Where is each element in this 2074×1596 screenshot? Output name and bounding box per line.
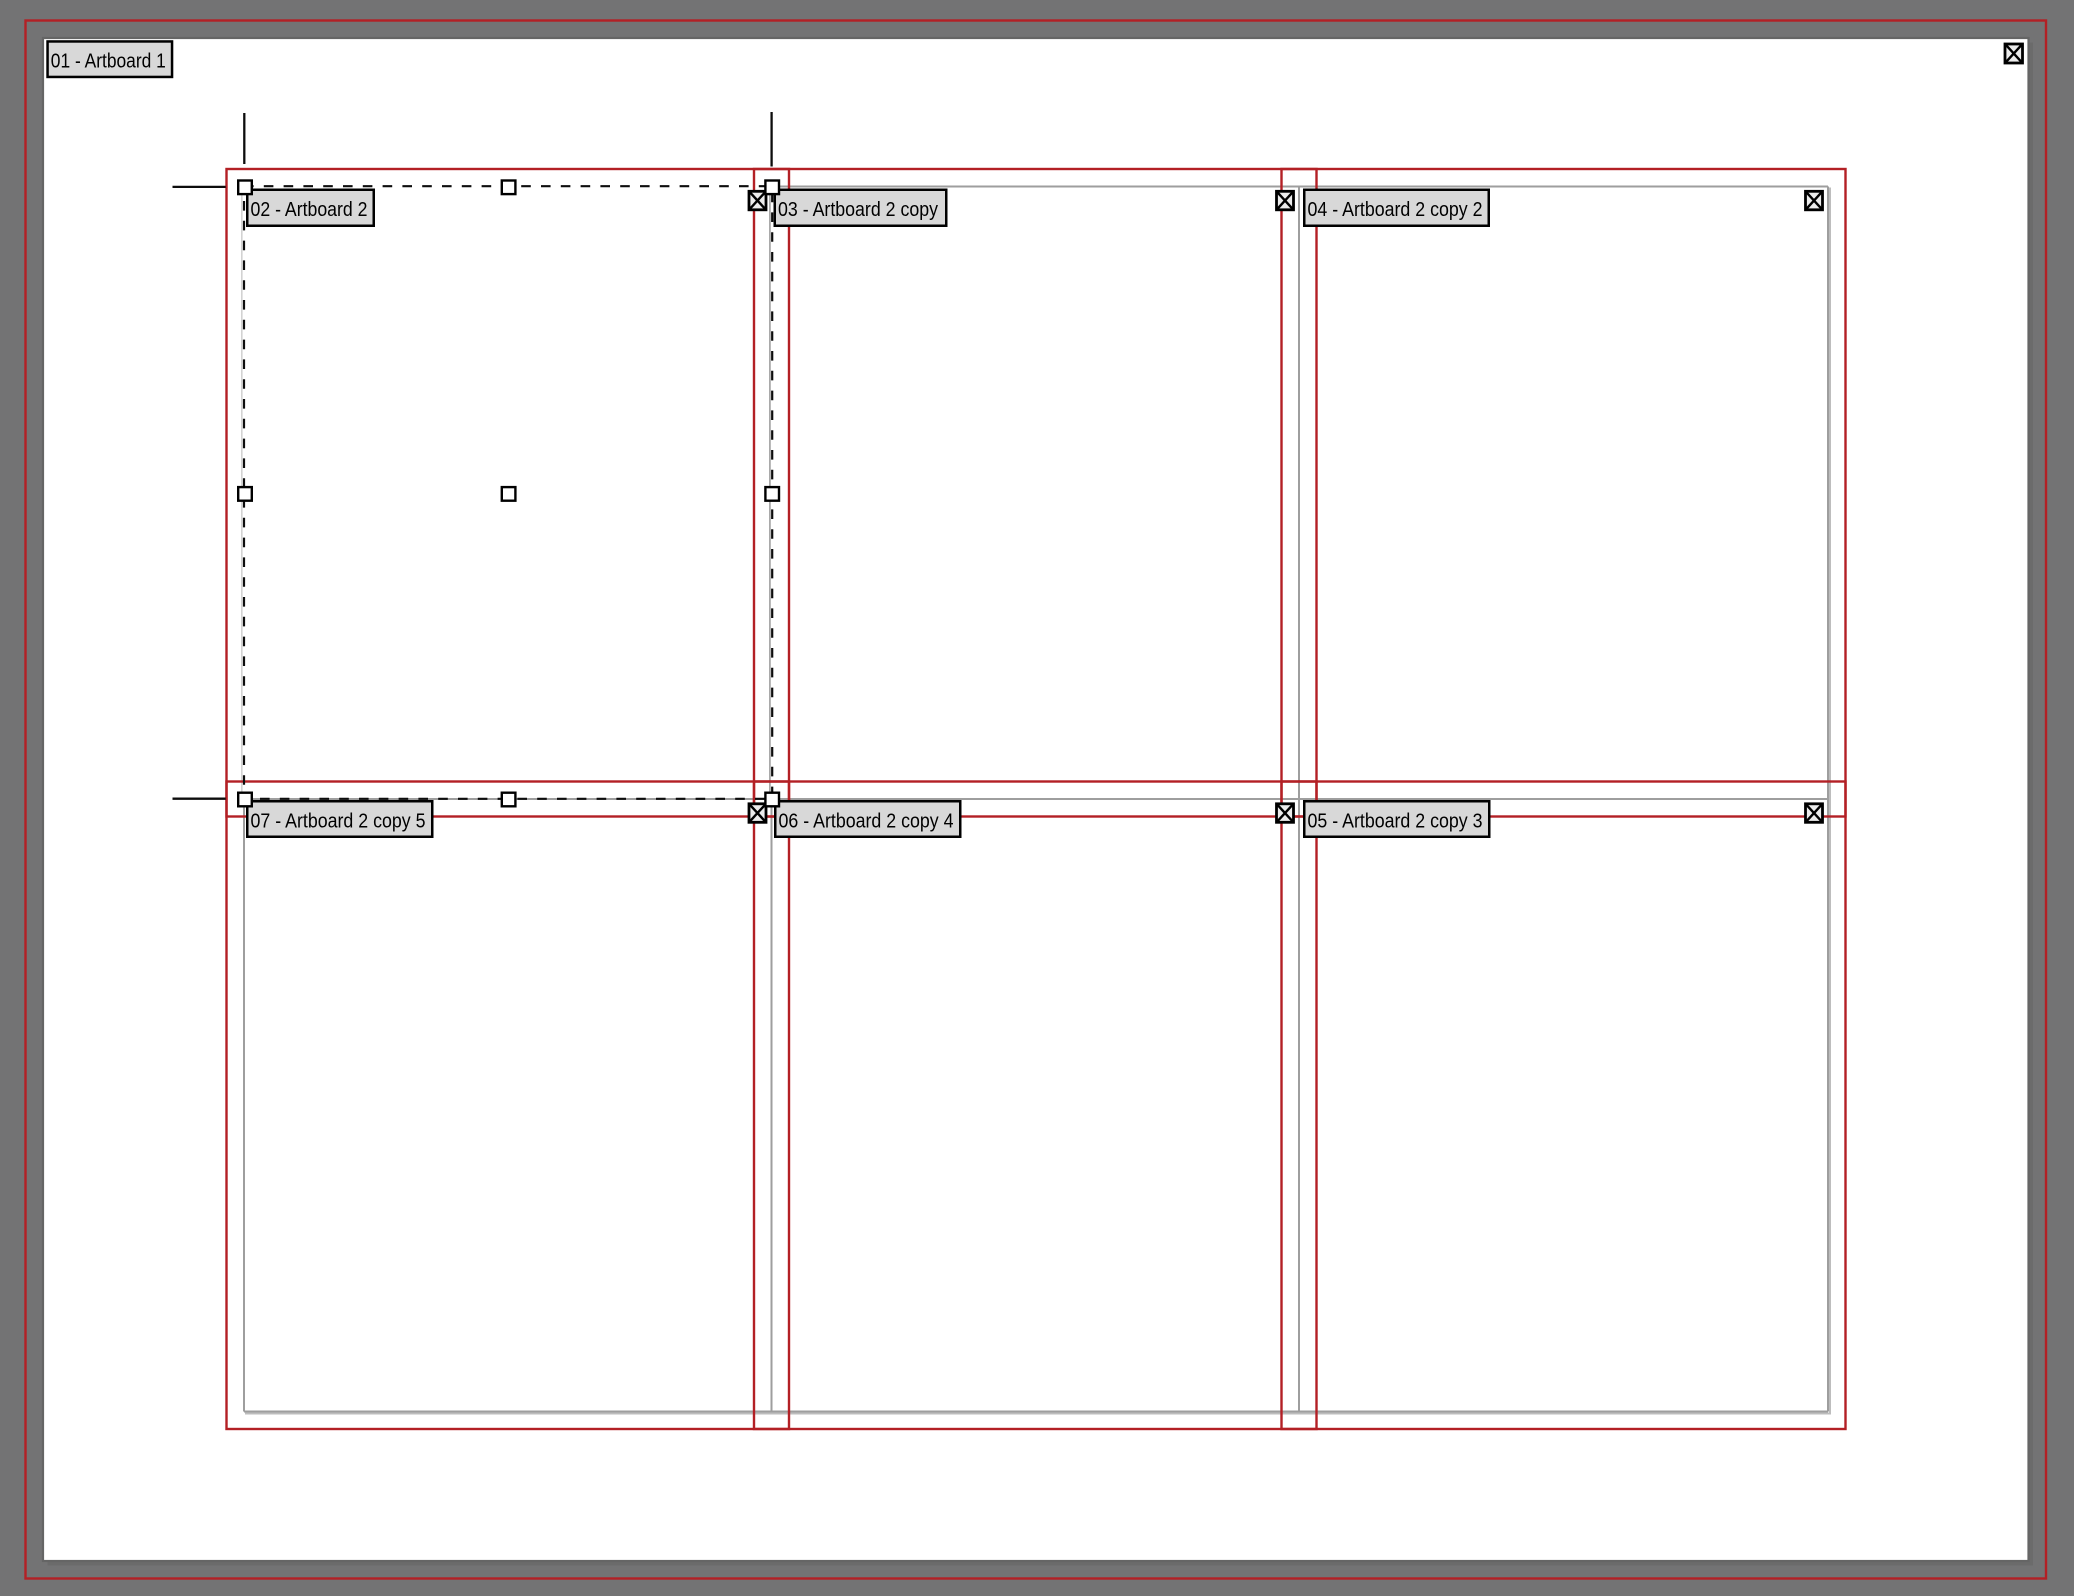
svg-text:07 - Artboard 2 copy 5: 07 - Artboard 2 copy 5 [251, 810, 426, 832]
svg-text:01 - Artboard 1: 01 - Artboard 1 [51, 51, 166, 73]
svg-text:03 - Artboard 2 copy: 03 - Artboard 2 copy [778, 199, 938, 221]
svg-text:06 - Artboard 2 copy 4: 06 - Artboard 2 copy 4 [779, 810, 954, 832]
svg-text:02 - Artboard 2: 02 - Artboard 2 [251, 199, 368, 221]
svg-text:05 - Artboard 2 copy 3: 05 - Artboard 2 copy 3 [1308, 810, 1483, 832]
svg-text:04 - Artboard 2 copy 2: 04 - Artboard 2 copy 2 [1308, 199, 1483, 221]
